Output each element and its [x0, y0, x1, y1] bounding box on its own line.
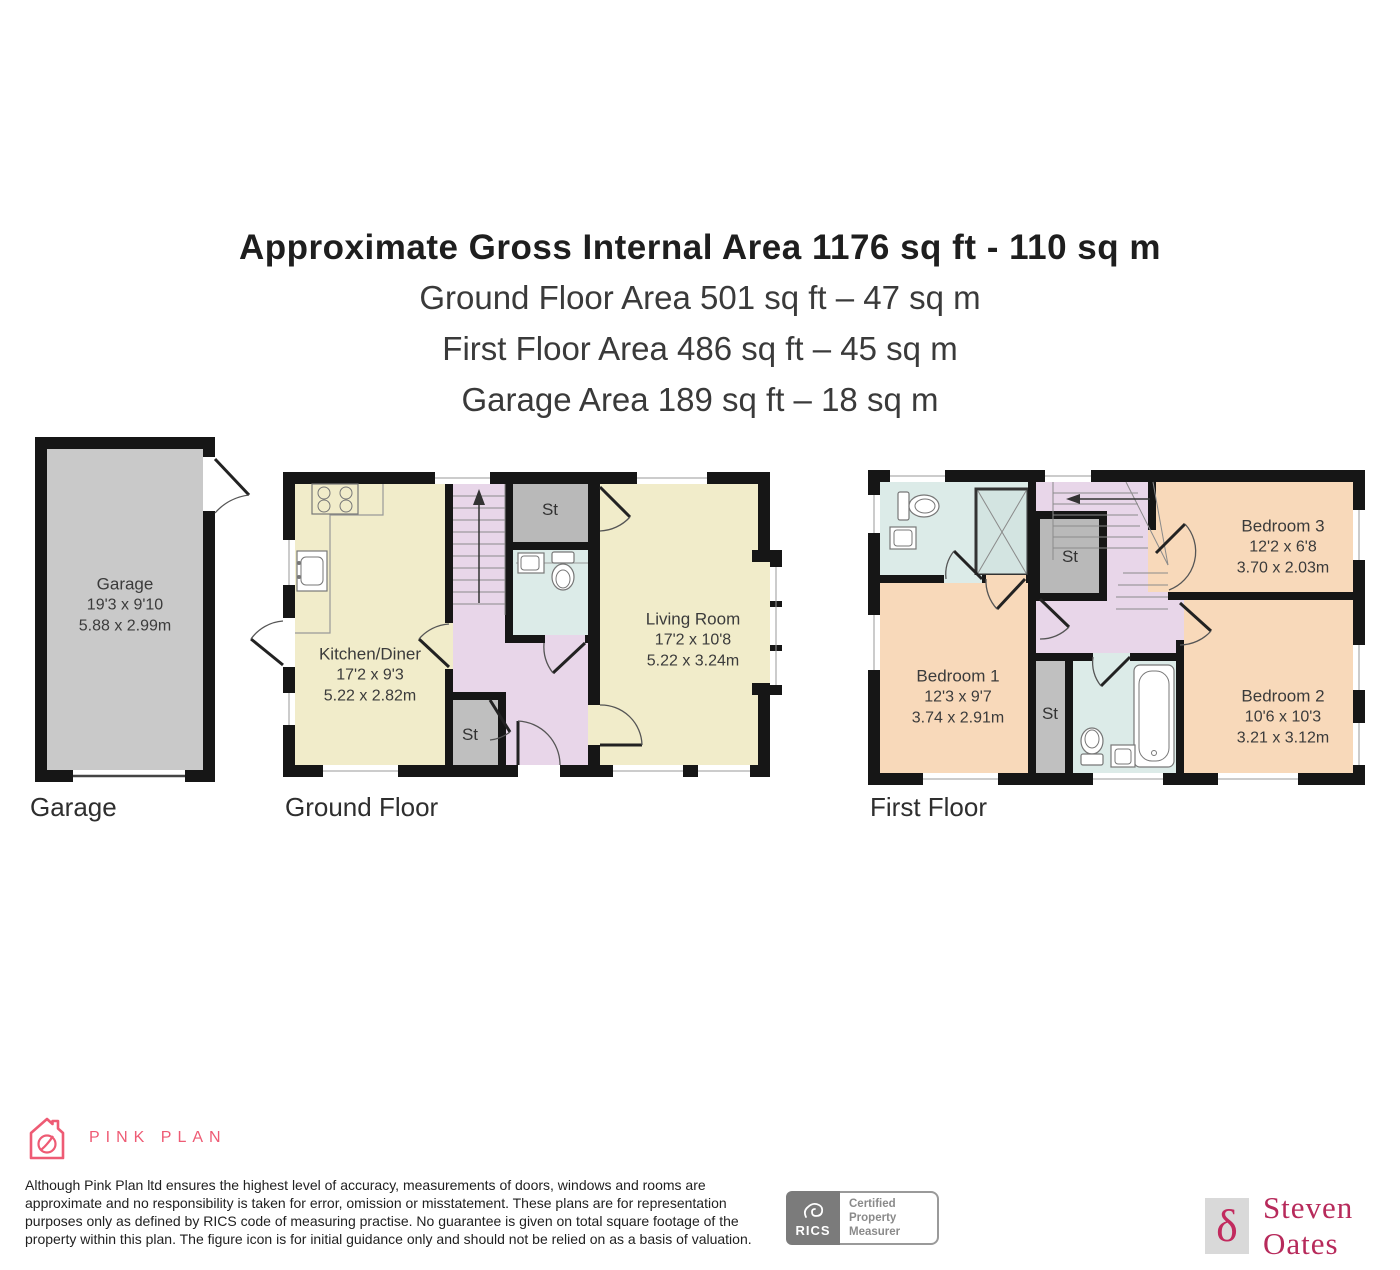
- disclaimer-line: Although Pink Plan ltd ensures the highe…: [25, 1176, 795, 1194]
- bedroom1-door-opening: [986, 575, 1026, 583]
- pink-plan-wordmark: PINK PLAN: [89, 1129, 227, 1147]
- rics-badge: RICS Certified Property Measurer: [786, 1191, 939, 1245]
- living-room-label: Living Room 17'2 x 10'8 5.22 x 3.24m: [646, 609, 741, 672]
- bedroom2-label: Bedroom 2 10'6 x 10'3 3.21 x 3.12m: [1237, 686, 1330, 749]
- disclaimer-line: approximate and no responsibility is tak…: [25, 1194, 795, 1212]
- agent-name: Steven Oates: [1263, 1190, 1400, 1262]
- hob-icon: [312, 484, 358, 514]
- ensuite-sink-icon: [890, 527, 916, 549]
- first-storage-top-label: St: [1062, 547, 1078, 567]
- bedroom1-label: Bedroom 1 12'3 x 9'7 3.74 x 2.91m: [912, 666, 1005, 729]
- ground-floor-caption: Ground Floor: [285, 792, 438, 823]
- kitchen-diner-label: Kitchen/Diner 17'2 x 9'3 5.22 x 2.82m: [319, 644, 421, 707]
- bay-window: [752, 550, 782, 695]
- rics-lion-icon: [800, 1199, 826, 1221]
- disclaimer-text: Although Pink Plan ltd ensures the highe…: [25, 1176, 795, 1248]
- ground-storage-top-label: St: [542, 500, 558, 520]
- bathtub-icon: [1134, 665, 1174, 767]
- garage-room-label: Garage 19'3 x 9'10 5.88 x 2.99m: [79, 574, 172, 637]
- agent-logo: δ Steven Oates: [1205, 1190, 1400, 1262]
- bathroom-toilet-icon: [1081, 728, 1103, 765]
- wc-sink-icon: [518, 553, 544, 573]
- ground-storage-bottom-label: St: [462, 725, 478, 745]
- shower-icon: [976, 489, 1028, 575]
- bedroom3-bedroom2-wall: [1168, 592, 1353, 600]
- kitchen-diner-floor: [295, 484, 445, 765]
- storage-bathroom-wall: [1065, 661, 1073, 773]
- disclaimer-line: property within this plan. The figure ic…: [25, 1230, 795, 1248]
- living-door-opening: [588, 705, 600, 745]
- rics-certification-panel: Certified Property Measurer: [840, 1191, 939, 1245]
- bathroom-door-opening: [1093, 653, 1130, 661]
- garage-area-line: Garage Area 189 sq ft – 18 sq m: [0, 381, 1400, 419]
- pink-plan-brand: PINK PLAN: [27, 1113, 227, 1163]
- garage-caption: Garage: [30, 792, 117, 823]
- rics-wordmark: RICS: [795, 1223, 830, 1238]
- ground-storage-bottom: [453, 692, 506, 765]
- first-storage-bottom-label: St: [1042, 704, 1058, 724]
- first-floor-area-line: First Floor Area 486 sq ft – 45 sq m: [0, 330, 1400, 368]
- bedroom3-label: Bedroom 3 12'2 x 6'8 3.70 x 2.03m: [1237, 516, 1330, 579]
- ground-floor-area-line: Ground Floor Area 501 sq ft – 47 sq m: [0, 279, 1400, 317]
- garage-door-opening: [73, 770, 185, 782]
- ensuite-door-opening: [944, 575, 982, 583]
- first-floor-caption: First Floor: [870, 792, 987, 823]
- pink-plan-house-icon: [27, 1114, 67, 1162]
- title-block: Approximate Gross Internal Area 1176 sq …: [0, 228, 1400, 432]
- gross-internal-area-title: Approximate Gross Internal Area 1176 sq …: [0, 228, 1400, 268]
- rics-emblem-panel: RICS: [786, 1191, 840, 1245]
- bedroom1-right-wall: [1028, 583, 1036, 773]
- bathroom-sink-icon: [1111, 745, 1135, 767]
- disclaimer-line: purposes only as defined by RICS code of…: [25, 1212, 795, 1230]
- kitchen-door-opening: [445, 623, 453, 669]
- wc-toilet-icon: [552, 552, 574, 590]
- kitchen-exterior-door: [251, 618, 295, 667]
- steven-oates-delta-icon: δ: [1205, 1198, 1249, 1254]
- kitchen-sink-icon: [297, 551, 327, 591]
